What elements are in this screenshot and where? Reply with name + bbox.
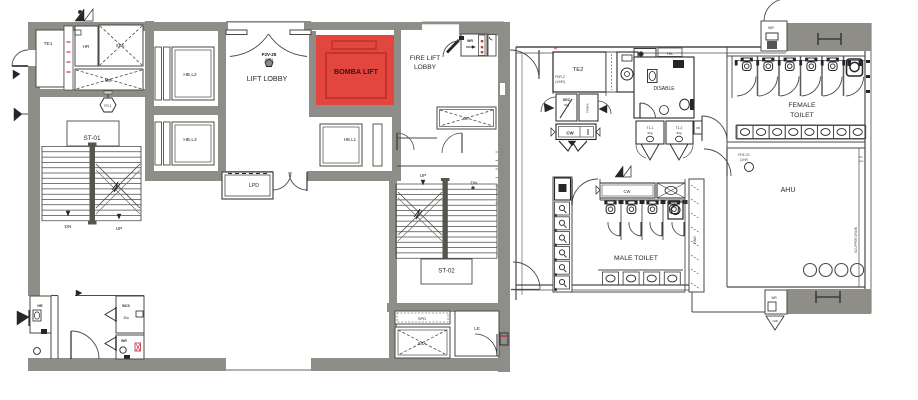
svg-text:90g: 90g	[676, 131, 681, 135]
svg-text:UP: UP	[116, 226, 123, 232]
svg-text:ST-02: ST-02	[438, 268, 455, 275]
svg-text:ST-01: ST-01	[83, 135, 100, 142]
svg-text:(1/HR): (1/HR)	[555, 80, 565, 84]
svg-text:90g: 90g	[647, 131, 652, 135]
svg-text:FDE-Z1: FDE-Z1	[738, 153, 750, 157]
svg-text:HB.L3: HB.L3	[183, 137, 197, 143]
svg-text:1HR: 1HR	[772, 319, 778, 323]
svg-text:HB.L1: HB.L1	[344, 137, 357, 142]
svg-text:SSA: SSA	[418, 341, 427, 346]
svg-text:P2V-Z8: P2V-Z8	[262, 52, 277, 57]
svg-text:FAD: FAD	[692, 236, 697, 244]
svg-text:TE2: TE2	[573, 67, 584, 73]
svg-text:BCS: BCS	[122, 304, 130, 308]
svg-text:T1.2: T1.2	[676, 126, 683, 130]
svg-text:TE1: TE1	[44, 41, 53, 47]
svg-text:30a: 30a	[123, 316, 129, 320]
svg-text:FIRE LIFT: FIRE LIFT	[410, 55, 440, 62]
svg-text:LE: LE	[474, 326, 480, 331]
svg-text:DN: DN	[471, 181, 478, 187]
svg-text:WR: WR	[771, 296, 777, 300]
svg-text:FHL: FHL	[667, 52, 674, 56]
svg-text:AHU: AHU	[781, 187, 796, 194]
svg-text:DISABLE: DISABLE	[653, 86, 675, 92]
svg-text:HR: HR	[83, 44, 90, 49]
svg-text:T1.1: T1.1	[647, 126, 654, 130]
svg-text:FG-1: FG-1	[104, 104, 111, 108]
svg-text:FEMALE: FEMALE	[788, 102, 816, 109]
svg-text:HR: HR	[37, 304, 43, 308]
svg-text:WR: WR	[121, 339, 127, 343]
svg-text:ME: ME	[463, 117, 469, 121]
svg-text:pain: pain	[858, 159, 864, 163]
svg-text:LPD: LPD	[249, 183, 259, 189]
svg-text:MALE TOILET: MALE TOILET	[614, 255, 658, 262]
svg-text:ME: ME	[105, 78, 111, 83]
svg-text:FDR-Z: FDR-Z	[555, 75, 565, 79]
svg-text:UP: UP	[420, 173, 427, 179]
svg-text:TOILET: TOILET	[790, 112, 814, 119]
svg-text:WR: WR	[467, 39, 473, 43]
svg-text:SCUPPER DRAIN: SCUPPER DRAIN	[854, 226, 858, 253]
svg-text:SSA: SSA	[116, 43, 125, 48]
svg-text:FDMAN: FDMAN	[586, 103, 590, 112]
svg-text:FB: FB	[696, 126, 700, 130]
svg-text:SEC: SEC	[563, 98, 571, 102]
svg-text:BOMBA LIFT: BOMBA LIFT	[334, 67, 379, 76]
svg-text:LIFT LOBBY: LIFT LOBBY	[247, 74, 288, 83]
svg-text:HB.L2: HB.L2	[183, 72, 197, 78]
svg-text:SPD: SPD	[418, 316, 426, 321]
svg-text:DN: DN	[65, 224, 72, 230]
svg-text:(1HR: (1HR	[740, 158, 748, 162]
svg-text:LOBBY: LOBBY	[414, 64, 437, 71]
svg-text:CW: CW	[624, 189, 631, 194]
svg-text:CW: CW	[566, 131, 574, 136]
svg-text:WR: WR	[768, 26, 774, 30]
